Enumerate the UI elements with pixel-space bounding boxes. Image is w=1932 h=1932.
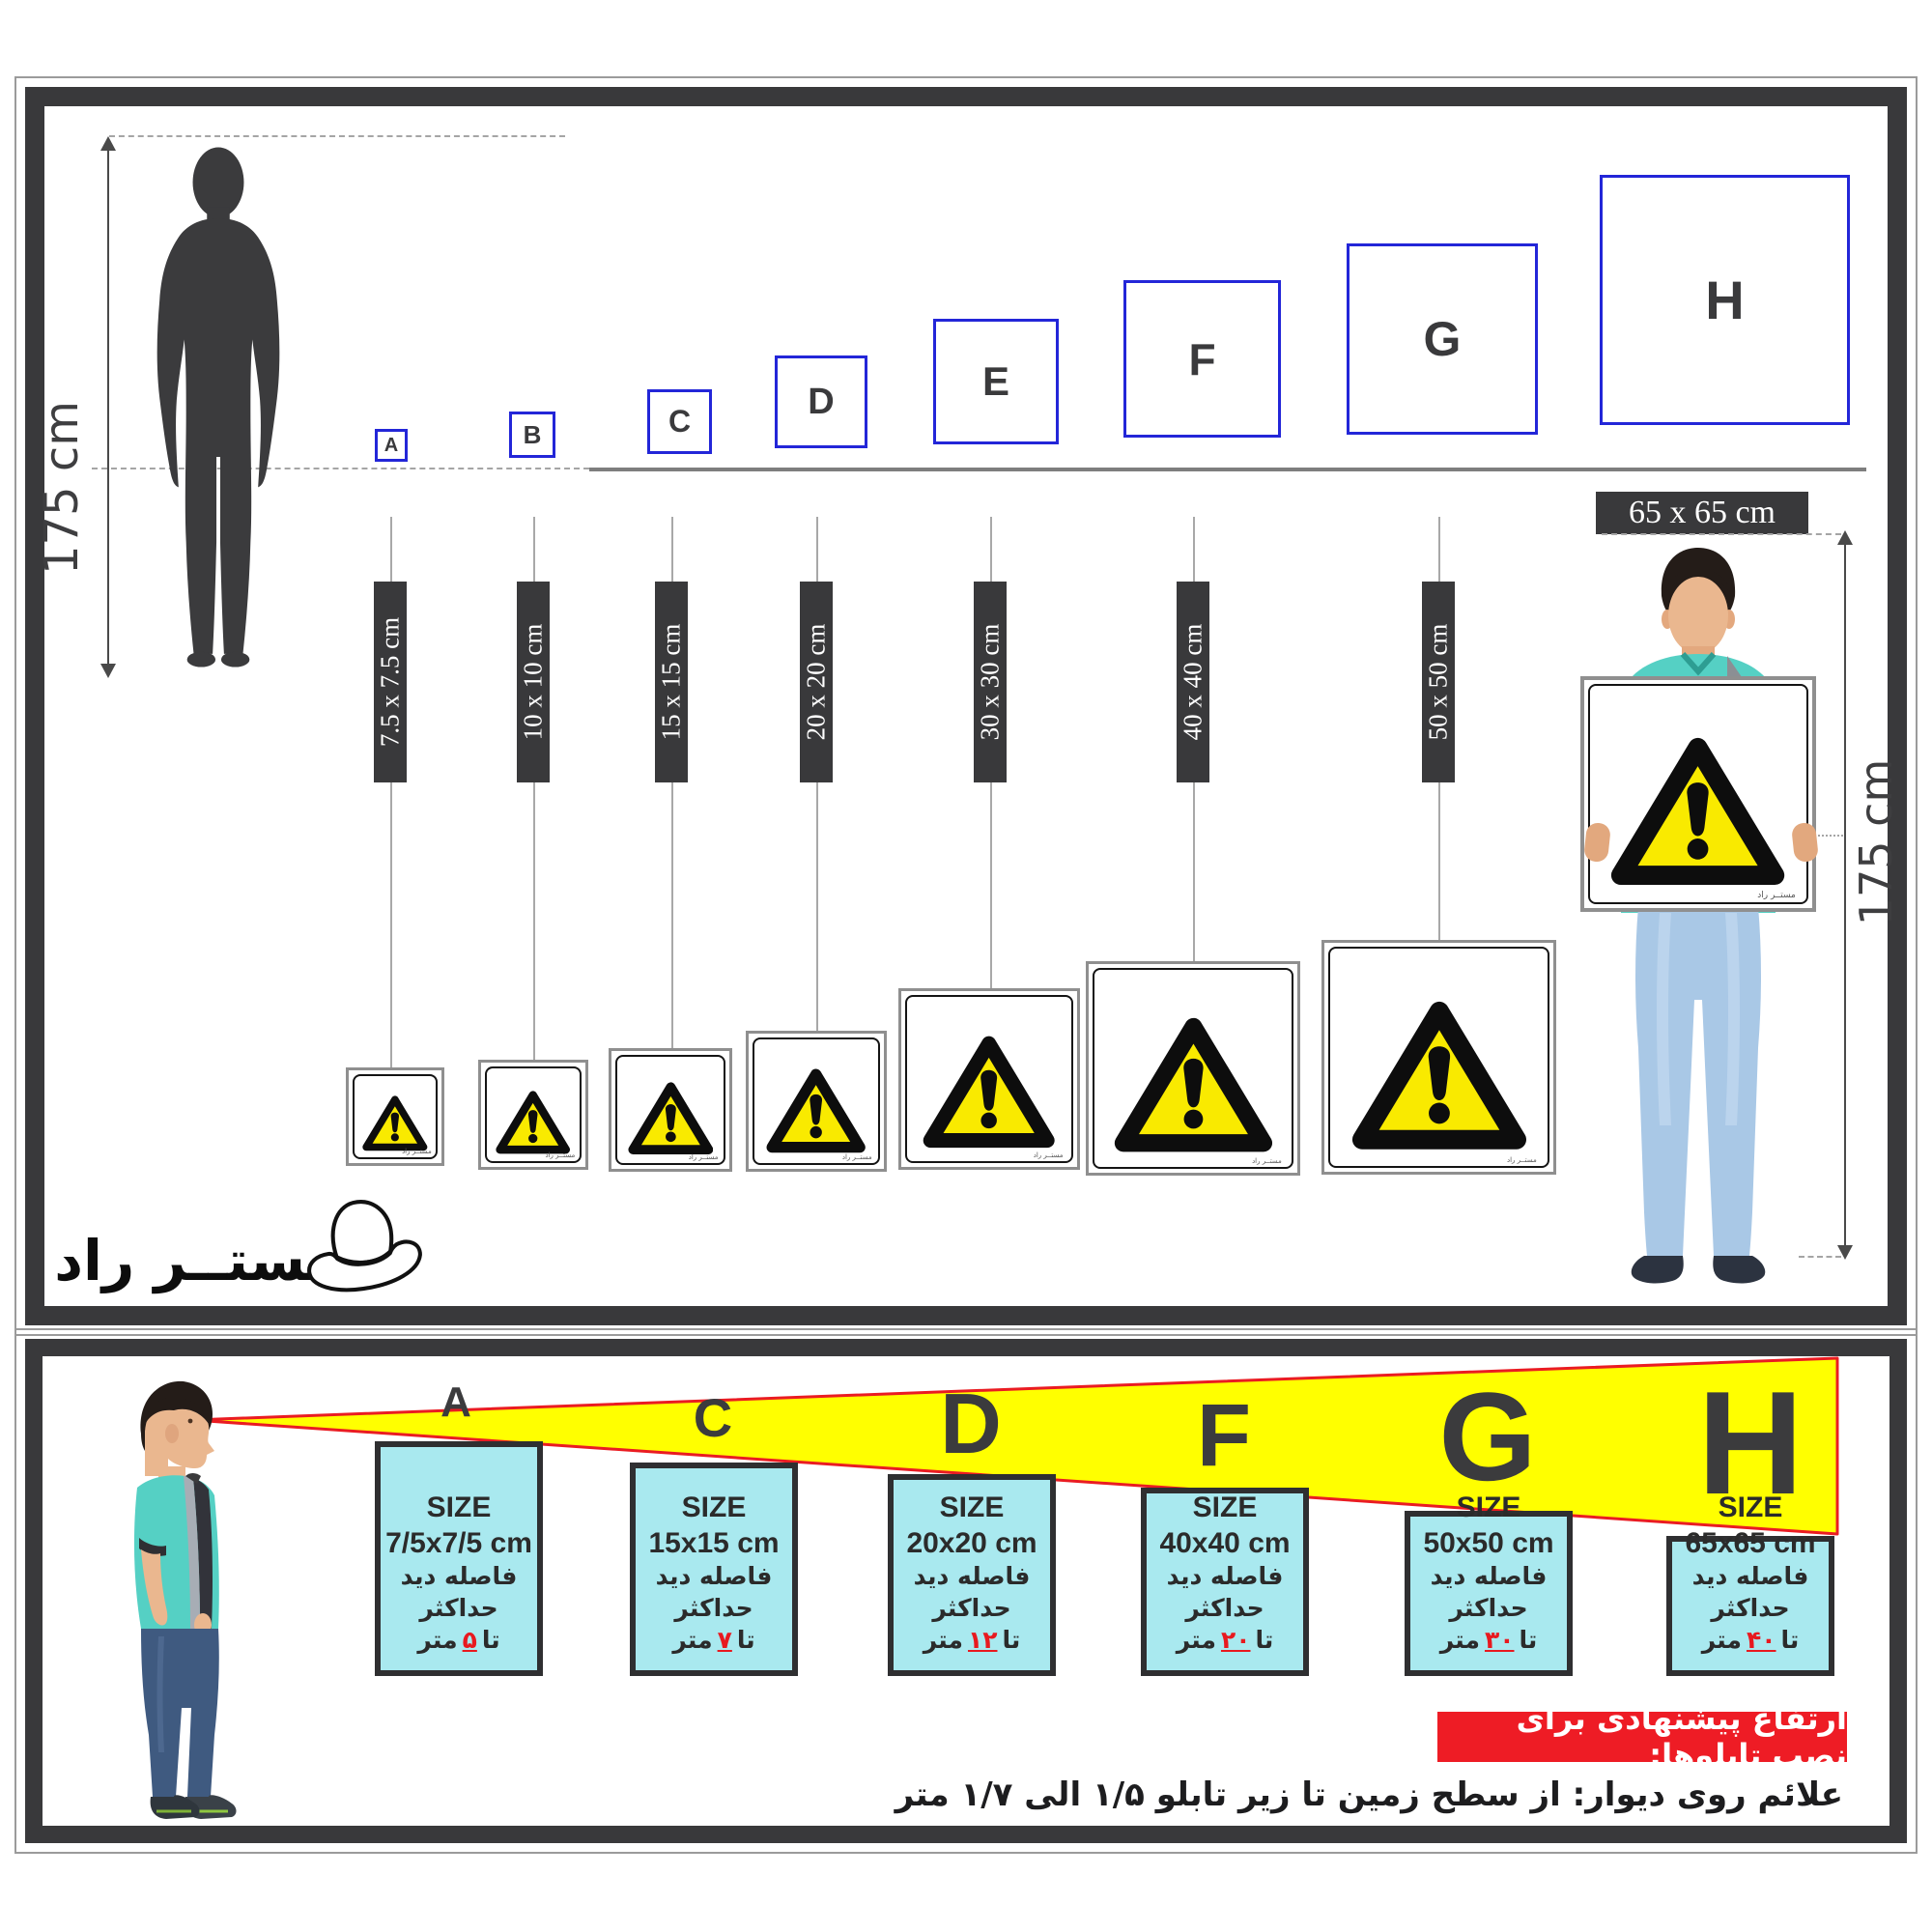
- size-square-letter: A: [384, 435, 398, 457]
- warning-sign-7-5: مستــر راد: [346, 1067, 444, 1166]
- person-silhouette: [124, 141, 313, 678]
- warning-triangle-icon: [1610, 737, 1785, 891]
- distance-number: ۵: [458, 1626, 482, 1654]
- distance-box-g: SIZE 50x50 cm فاصله دید حداکثر تا۳۰متر: [1405, 1511, 1573, 1676]
- distance-value-line: تا۱۲متر: [923, 1624, 1021, 1657]
- warning-sign-50: مستــر راد: [1321, 940, 1556, 1175]
- distance-caption: فاصله دید حداکثر: [1410, 1561, 1567, 1624]
- sign-brand-text: مستــر راد: [545, 1151, 575, 1161]
- warning-sign-face: مستــر راد: [1093, 968, 1293, 1169]
- distance-caption: فاصله دید حداکثر: [381, 1561, 537, 1624]
- warning-sign-face: مستــر راد: [905, 995, 1073, 1163]
- distance-number: ۲۰: [1216, 1626, 1256, 1654]
- size-square-letter: C: [668, 404, 691, 440]
- distance-number: ۳۰: [1480, 1626, 1520, 1654]
- size-square-letter: D: [808, 382, 834, 423]
- size-label: SIZE: [1719, 1491, 1783, 1525]
- warning-sign-65-held: مستــر راد: [1580, 676, 1816, 912]
- size-label: SIZE: [1193, 1491, 1258, 1525]
- warning-sign-face: مستــر راد: [753, 1037, 880, 1165]
- view-letter-a: A: [440, 1381, 471, 1424]
- right-measure-line: [1844, 535, 1846, 1258]
- warning-triangle-icon: [1351, 1001, 1527, 1155]
- infographic-page: 175 cm A B C D E F G H 7.5 x 7.5 cm 10 x…: [0, 0, 1932, 1932]
- size-value: 40x40 cm: [1159, 1525, 1290, 1562]
- size-square-letter: G: [1424, 311, 1462, 367]
- size-value: 7/5x7/5 cm: [385, 1525, 532, 1562]
- size-value: 15x15 cm: [648, 1525, 779, 1562]
- size-label: SIZE: [682, 1491, 747, 1525]
- view-letter-f: F: [1197, 1391, 1251, 1480]
- sign-brand-text: مستــر راد: [1252, 1157, 1282, 1167]
- sign-brand-text: مستــر راد: [402, 1148, 432, 1157]
- size-label: SIZE: [427, 1491, 492, 1525]
- holder-right-hand: [1791, 822, 1819, 863]
- cowboy-hat-icon: [291, 1183, 434, 1309]
- size-square-f: F: [1123, 280, 1281, 438]
- size-banner-10: 10 x 10 cm: [517, 582, 550, 782]
- mounting-height-text: علائم روی دیوار: از سطح زمین تا زیر تابل…: [895, 1776, 1843, 1814]
- warning-triangle-icon: [628, 1082, 714, 1157]
- warning-triangle-icon: [496, 1091, 570, 1156]
- warning-sign-face: مستــر راد: [1328, 947, 1549, 1168]
- sign-level-tick: [1814, 835, 1843, 837]
- size-square-g: G: [1347, 243, 1538, 435]
- size-square-letter: H: [1705, 269, 1744, 331]
- warning-triangle-icon: [766, 1068, 866, 1156]
- warning-sign-30: مستــر راد: [898, 988, 1080, 1170]
- warning-sign-face: مستــر راد: [353, 1074, 438, 1159]
- sign-brand-text: مستــر راد: [842, 1153, 872, 1163]
- holder-head-dashed-line: [1602, 533, 1841, 535]
- warning-sign-15: مستــر راد: [609, 1048, 732, 1172]
- warning-triangle-icon: [1114, 1017, 1273, 1157]
- size-banner-15: 15 x 15 cm: [655, 582, 688, 782]
- view-letter-c: C: [694, 1391, 732, 1445]
- held-sign-size-label: 65 x 65 cm: [1596, 492, 1808, 534]
- size-square-a: A: [375, 429, 408, 462]
- warning-triangle-icon: [362, 1095, 428, 1153]
- size-square-h: H: [1600, 175, 1850, 425]
- warning-sign-20: مستــر راد: [746, 1031, 887, 1172]
- distance-number: ۴۰: [1742, 1626, 1781, 1654]
- distance-box-a: SIZE 7/5x7/5 cm فاصله دید حداکثر تا۵متر: [375, 1441, 543, 1676]
- size-banner-7-5: 7.5 x 7.5 cm: [374, 582, 407, 782]
- distance-caption: فاصله دید حداکثر: [1147, 1561, 1303, 1624]
- sign-brand-text: مستــر راد: [689, 1153, 719, 1163]
- warning-sign-face: مستــر راد: [1588, 684, 1808, 904]
- size-banner-30: 30 x 30 cm: [974, 582, 1007, 782]
- head-level-dashed-line: [109, 135, 565, 137]
- warning-triangle-icon: [923, 1036, 1055, 1152]
- distance-caption: فاصله دید حداکثر: [1672, 1561, 1829, 1624]
- size-square-letter: B: [524, 420, 542, 450]
- left-measure-arrow-up-icon: [100, 136, 116, 151]
- left-measure-arrow-down-icon: [100, 664, 116, 678]
- left-measure-line: [107, 141, 109, 676]
- size-square-b: B: [509, 412, 555, 458]
- distance-value-line: تا۷متر: [672, 1624, 754, 1657]
- distance-box-c: SIZE 15x15 cm فاصله دید حداکثر تا۷متر: [630, 1463, 798, 1676]
- warning-sign-face: مستــر راد: [615, 1055, 725, 1165]
- size-square-letter: E: [982, 358, 1009, 405]
- mounting-height-title: ارتفاع پیشنهادی برای نصب تابلوها:: [1437, 1712, 1847, 1762]
- distance-value-line: تا۳۰متر: [1440, 1624, 1538, 1657]
- size-label: SIZE: [940, 1491, 1005, 1525]
- view-letter-g: G: [1438, 1374, 1536, 1499]
- size-square-e: E: [933, 319, 1059, 444]
- distance-value-line: تا۲۰متر: [1177, 1624, 1274, 1657]
- baseline: [589, 468, 1866, 471]
- size-banner-20: 20 x 20 cm: [800, 582, 833, 782]
- distance-box-d: SIZE 20x20 cm فاصله دید حداکثر تا۱۲متر: [888, 1474, 1056, 1676]
- distance-box-h: SIZE 65x65 cm فاصله دید حداکثر تا۴۰متر: [1666, 1536, 1834, 1676]
- size-banner-50: 50 x 50 cm: [1422, 582, 1455, 782]
- distance-value-line: تا۴۰متر: [1702, 1624, 1800, 1657]
- distance-caption: فاصله دید حداکثر: [636, 1561, 792, 1624]
- size-value: 50x50 cm: [1423, 1525, 1553, 1562]
- view-letter-d: D: [940, 1381, 1002, 1466]
- distance-number: ۷: [713, 1626, 737, 1654]
- size-value: 20x20 cm: [906, 1525, 1037, 1562]
- holder-person-photo: [1582, 546, 1814, 1309]
- size-square-c: C: [647, 389, 712, 454]
- distance-value-line: تا۵متر: [417, 1624, 499, 1657]
- size-square-letter: F: [1188, 333, 1215, 385]
- size-label: SIZE: [1457, 1491, 1521, 1525]
- warning-sign-40: مستــر راد: [1086, 961, 1300, 1176]
- size-banner-40: 40 x 40 cm: [1177, 582, 1209, 782]
- distance-box-f: SIZE 40x40 cm فاصله دید حداکثر تا۲۰متر: [1141, 1488, 1309, 1676]
- size-value: 65x65 cm: [1685, 1525, 1815, 1562]
- sign-brand-text: مستــر راد: [1507, 1156, 1537, 1166]
- profile-person-photo: [100, 1376, 332, 1830]
- sign-brand-text: مستــر راد: [1034, 1151, 1064, 1161]
- warning-sign-face: مستــر راد: [485, 1066, 582, 1163]
- distance-caption: فاصله دید حداکثر: [894, 1561, 1050, 1624]
- distance-number: ۱۲: [963, 1626, 1003, 1654]
- size-square-d: D: [775, 355, 867, 448]
- sign-brand-text: مستــر راد: [1757, 890, 1796, 902]
- warning-sign-10: مستــر راد: [478, 1060, 588, 1170]
- right-measure-arrow-up-icon: [1837, 530, 1853, 545]
